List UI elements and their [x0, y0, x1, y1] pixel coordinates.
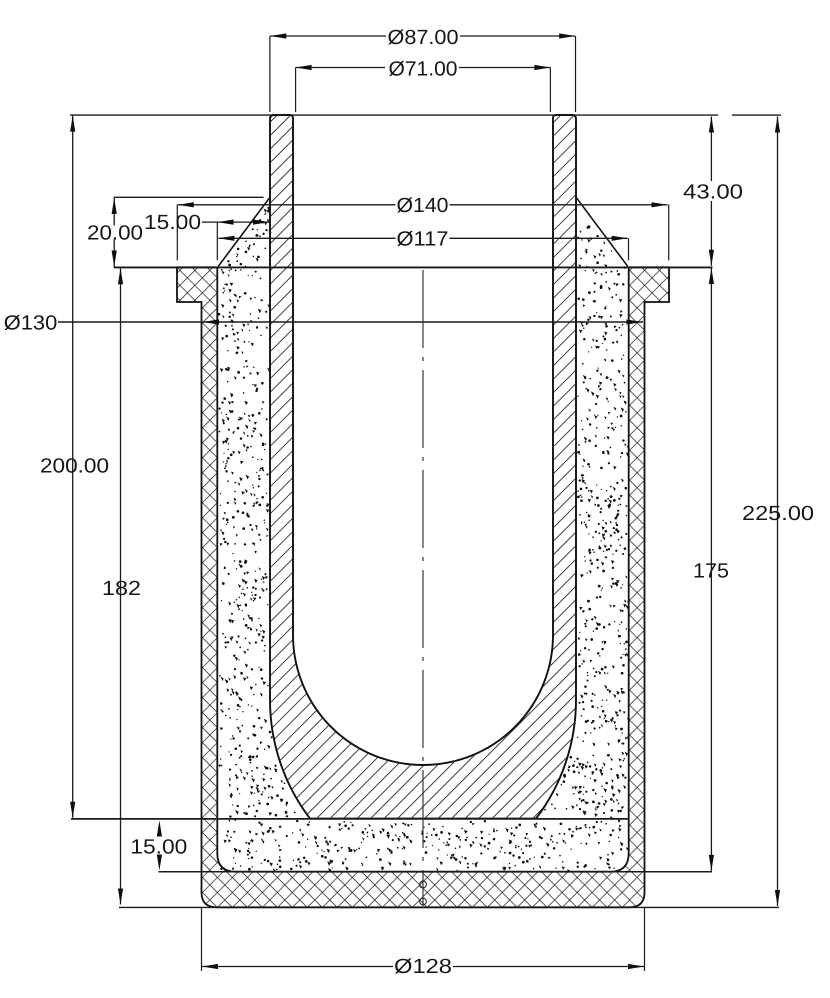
svg-text:20.00: 20.00 — [87, 221, 143, 244]
svg-text:Ø140: Ø140 — [397, 194, 449, 217]
svg-text:Ø71.00: Ø71.00 — [389, 57, 458, 80]
svg-text:Ø87.00: Ø87.00 — [388, 26, 459, 49]
svg-text:Ø128: Ø128 — [394, 955, 452, 978]
svg-text:43.00: 43.00 — [683, 180, 743, 203]
svg-text:15.00: 15.00 — [144, 211, 201, 234]
svg-text:175: 175 — [693, 559, 729, 582]
svg-text:Ø130: Ø130 — [4, 311, 58, 334]
svg-text:15.00: 15.00 — [130, 835, 187, 858]
svg-text:225.00: 225.00 — [742, 502, 814, 525]
svg-text:182: 182 — [102, 577, 141, 600]
svg-text:Ø117: Ø117 — [397, 228, 449, 251]
svg-text:200.00: 200.00 — [40, 454, 109, 477]
